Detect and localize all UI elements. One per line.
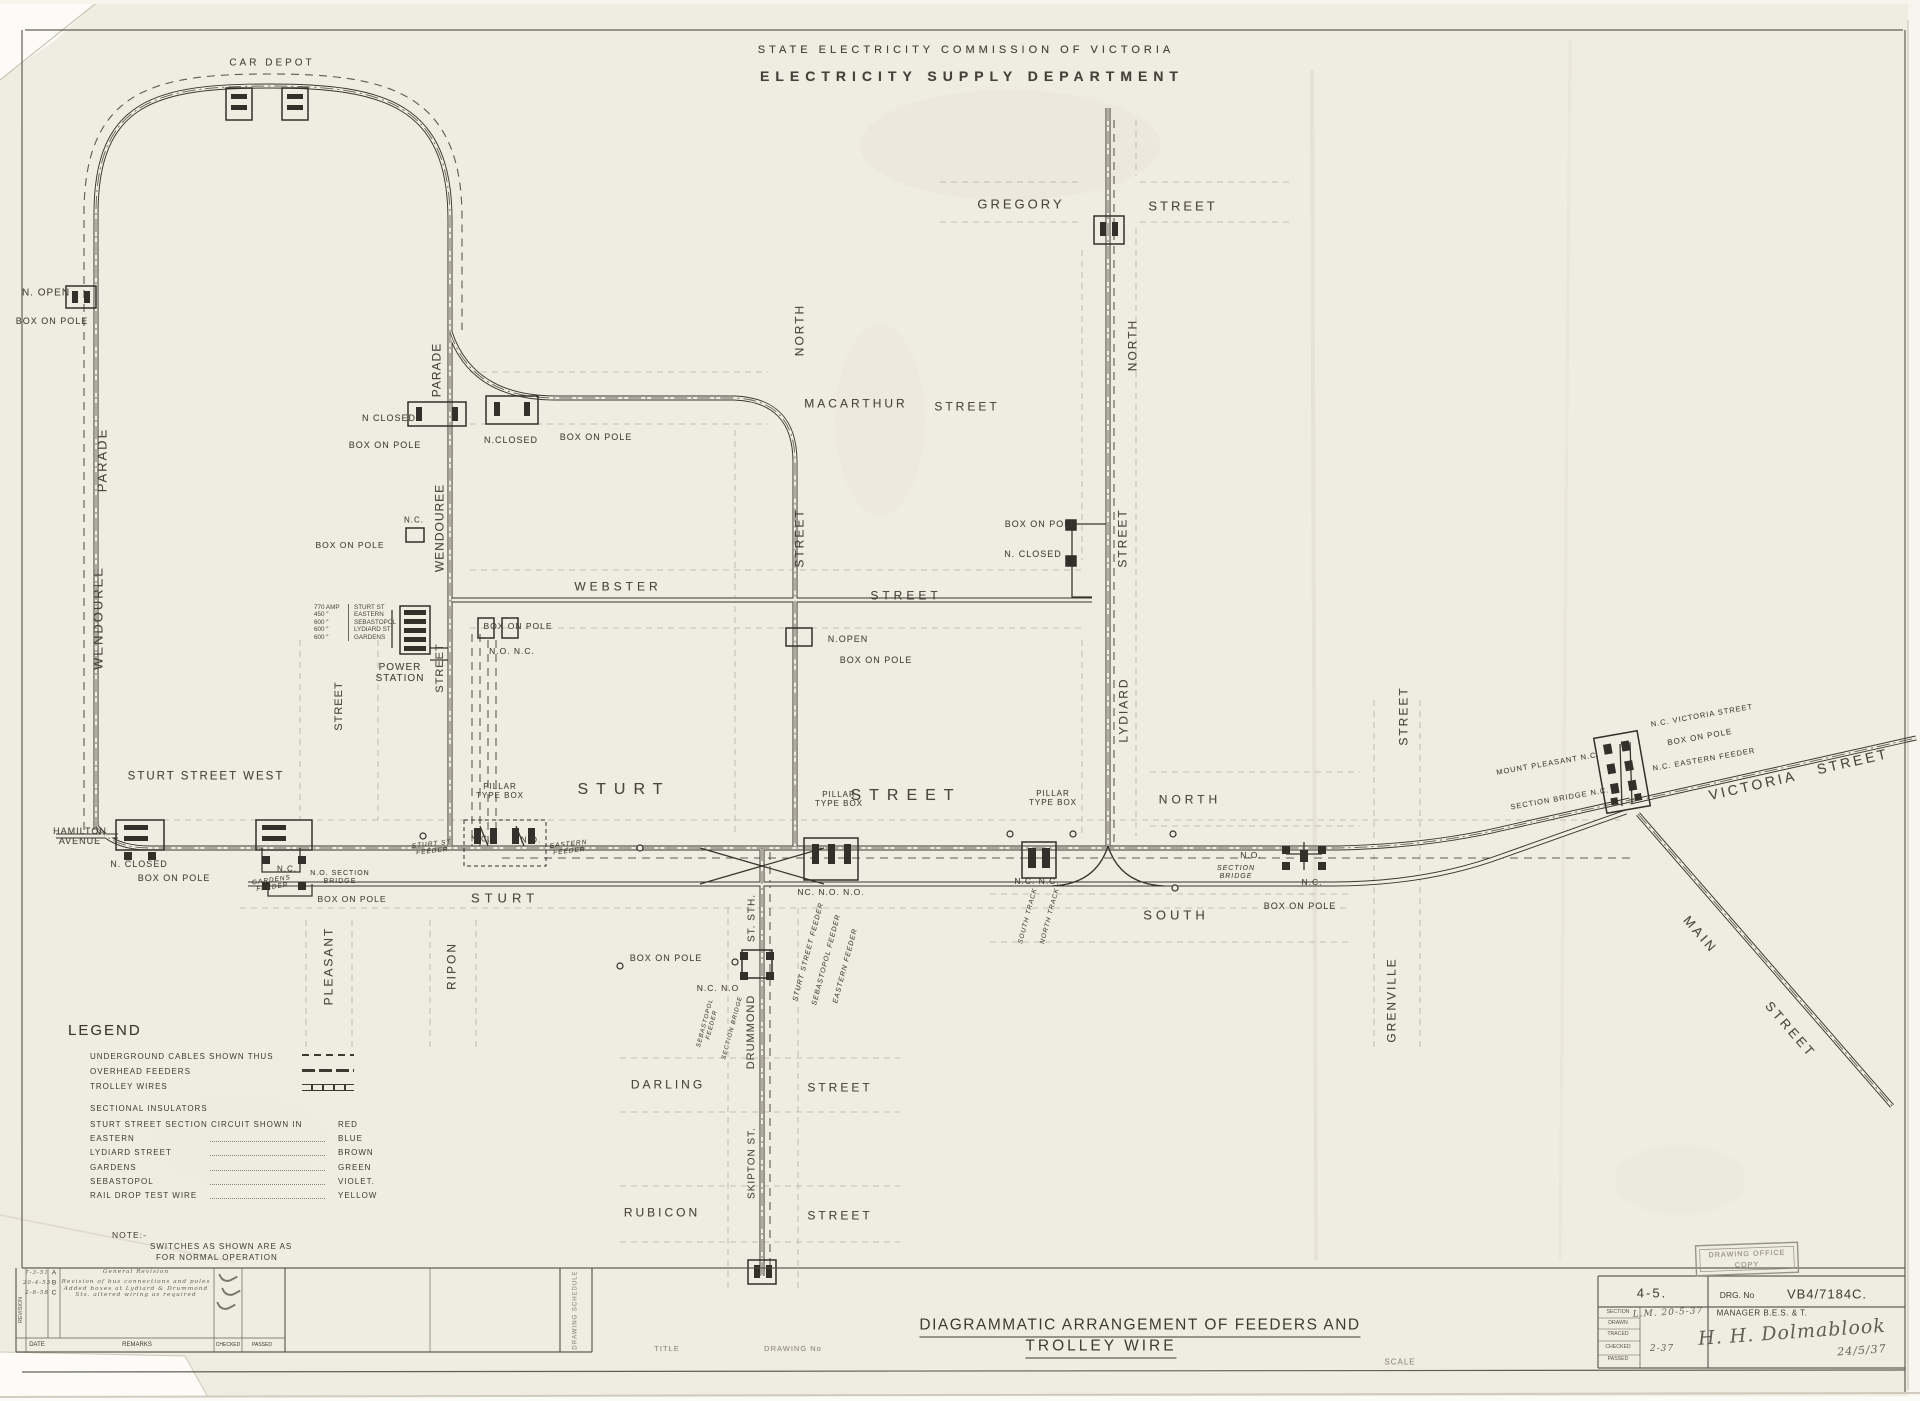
circuit-name: SEBASTOPOL <box>90 1177 154 1186</box>
sheet-title-line2: TROLLEY WIRE <box>1025 1338 1176 1359</box>
no-section-bridge: N.O. SECTION BRIDGE <box>310 870 369 886</box>
revision-date-header: DATE <box>29 1342 45 1348</box>
revision-remark: General Revision <box>61 1270 211 1276</box>
legend-circuit-row: EASTERNBLUE <box>90 1134 135 1143</box>
revision-date: 20-4-53 <box>23 1280 51 1286</box>
dotted-leader <box>210 1191 325 1199</box>
lydiard-label: LYDIARD <box>1117 677 1130 742</box>
feeder-name: GARDENS <box>348 634 385 641</box>
darling-street-label: STREET <box>807 1081 872 1094</box>
nc-sturt: N.C. <box>471 836 491 845</box>
circuit-name: LYDIARD STREET <box>90 1148 172 1157</box>
scale-label: SCALE <box>1384 1359 1415 1368</box>
feeder-name: LYDIARD ST <box>348 626 391 633</box>
legend-circuit-row: SEBASTOPOLVIOLET. <box>90 1177 154 1186</box>
darling-label: DARLING <box>631 1078 705 1091</box>
power-station-feeder-list: 770 AMPSTURT ST450 ″EASTERN600 ″SEBASTOP… <box>314 604 396 641</box>
feeder-row: 450 ″EASTERN <box>314 611 396 618</box>
street-west-label: STREET <box>333 681 345 730</box>
hamilton-avenue-label: HAMILTON AVENUE <box>53 826 107 846</box>
box-on-pole-lydiard: BOX ON POLE <box>1005 519 1078 529</box>
webster-street-label: STREET <box>870 589 941 602</box>
power-station-label: POWER STATION <box>376 662 425 684</box>
dotted-leader <box>210 1148 325 1156</box>
dash-line-swatch <box>302 1054 354 1056</box>
no-nc-ps: N.O. N.C. <box>489 647 535 657</box>
nc-wendouree: N.C. <box>404 517 424 526</box>
nc-nc-lydiard: N.C. N.C. <box>1014 877 1059 887</box>
box-on-pole-3: BOX ON POLE <box>315 541 384 551</box>
feeder-name: STURT ST <box>348 604 385 611</box>
legend-circuit-row: GARDENSGREEN <box>90 1163 137 1172</box>
revision-date: 2-8-58 <box>25 1290 49 1296</box>
feeder-amps: 600 ″ <box>314 634 348 641</box>
box-on-pole-gardens: BOX ON POLE <box>317 895 386 905</box>
commission-title: STATE ELECTRICITY COMMISSION OF VICTORIA <box>758 44 1175 56</box>
dotted-leader <box>210 1163 325 1171</box>
n-closed-hamilton: N. CLOSED <box>110 859 168 869</box>
box-on-pole-2: BOX ON POLE <box>560 432 633 442</box>
drawing-number: VB4/7184C. <box>1787 1287 1867 1302</box>
dotted-leader <box>210 1134 325 1142</box>
n-closed-lydiard: N. CLOSED <box>1004 549 1062 559</box>
section-bridge-e: SECTION BRIDGE <box>1217 865 1255 881</box>
legend-note-label: NOTE:- <box>112 1230 147 1240</box>
legend-note-line1: SWITCHES AS SHOWN ARE AS <box>150 1242 292 1251</box>
sheet-title-line1: DIAGRAMMATIC ARRANGEMENT OF FEEDERS AND <box>919 1317 1360 1338</box>
scanned-feeder-diagram: CAR DEPOTN. OPENBOX ON POLEPARADEWENDOUR… <box>0 0 1920 1401</box>
macarthur-street-label: STREET <box>934 400 999 413</box>
nc-no-drummond: N.C. N.O <box>697 984 739 994</box>
nc-gardens: N.C. <box>277 866 297 875</box>
gregory-street-label: STREET <box>1148 200 1217 215</box>
rubicon-street-label: STREET <box>807 1209 872 1222</box>
feeder-row: 600 ″GARDENS <box>314 634 396 641</box>
legend-line-row: UNDERGROUND CABLES SHOWN THUS <box>90 1052 274 1061</box>
title-block-row-section: SECTION <box>1606 1309 1629 1315</box>
revision-remarks-header: REMARKS <box>122 1342 152 1348</box>
pillar-type-box-e: PILLAR TYPE BOX <box>1029 790 1077 808</box>
revision-remark: Added boxes at Lydiard & Drummond Sts. a… <box>61 1287 211 1299</box>
rubicon-label: RUBICON <box>624 1206 700 1219</box>
title-block-row-passed: PASSED <box>1608 1356 1629 1362</box>
revision-passed-header: PASSED <box>252 1342 272 1348</box>
legend-heading: LEGEND <box>68 1022 142 1039</box>
trolley-line-swatch <box>302 1084 354 1091</box>
circuit-name: GARDENS <box>90 1163 137 1172</box>
drawing-schedule-label: DRAWING SCHEDULE <box>573 1270 580 1349</box>
drawing-number-label: DRG. No <box>1720 1290 1754 1300</box>
revision-date: 7-3-51 <box>25 1270 49 1276</box>
box-on-pole-drummond-s: BOX ON POLE <box>630 953 703 963</box>
north-drummond-label: NORTH <box>793 304 806 356</box>
feeder-row: 770 AMPSTURT ST <box>314 604 396 611</box>
circuit-name: RAIL DROP TEST WIRE <box>90 1191 197 1200</box>
legend-line-row: OVERHEAD FEEDERS <box>90 1067 191 1076</box>
sturt-west-label: STURT <box>471 892 539 907</box>
title-block-row-checked: CHECKED <box>1605 1344 1630 1350</box>
legend-circuit-row: RAIL DROP TEST WIREYELLOW <box>90 1191 197 1200</box>
nc-no-no-label: NC. N.O. N.O. <box>797 888 864 898</box>
webster-label: WEBSTER <box>574 580 661 593</box>
box-on-pole-nw: BOX ON POLE <box>16 316 89 326</box>
skipton-label: SKIPTON ST. <box>746 1127 757 1199</box>
legend-note-line2: FOR NORMAL OPERATION <box>156 1253 278 1262</box>
legend-line-label: OVERHEAD FEEDERS <box>90 1067 191 1076</box>
revision-vertical-label: REVISION <box>18 1297 24 1323</box>
legend-line-row: TROLLEY WIRES <box>90 1082 168 1091</box>
circuit-color: BLUE <box>338 1134 363 1143</box>
feeder-amps: 770 AMP <box>314 604 348 611</box>
n-closed-loop: N CLOSED <box>362 413 416 423</box>
sturt-main-label: STURT <box>577 781 670 799</box>
south-street-label: SOUTH <box>1143 909 1209 924</box>
sturt-street-west-label: STURT STREET WEST <box>128 771 285 784</box>
feeder-row: 600 ″SEBASTOPOL <box>314 619 396 626</box>
gregory-label: GREGORY <box>977 198 1064 213</box>
street-grenville-label: STREET <box>1397 686 1410 745</box>
manager-label: MANAGER B.E.S. & T. <box>1717 1309 1808 1318</box>
nc-bridge-e: N.C. <box>1302 878 1323 888</box>
wendouree-east-label: WENDOUREE <box>433 484 446 572</box>
n-open-drummond: N.OPEN <box>828 634 869 644</box>
feeder-name: EASTERN <box>348 611 384 618</box>
n-closed-2: N.CLOSED <box>484 435 538 445</box>
office-stamp-line2: COPY <box>1735 1261 1760 1270</box>
street-main-label: STREET <box>850 787 961 805</box>
wendouree-west-label: WENDOUREE <box>92 566 107 670</box>
no-sturt: N.O. <box>521 837 541 846</box>
cell-drawing-no-label: DRAWING No <box>764 1345 822 1353</box>
parade-east-label: PARADE <box>430 343 443 397</box>
box-on-pole-loop: BOX ON POLE <box>349 440 422 450</box>
circuit-color: BROWN <box>338 1148 374 1157</box>
north-sturt-label: NORTH <box>1159 793 1221 806</box>
feeder-amps: 600 ″ <box>314 626 348 633</box>
car-depot-label: CAR DEPOT <box>229 57 314 68</box>
grenville-label: GRENVILLE <box>1385 957 1398 1042</box>
feeder-amps: 450 ″ <box>314 611 348 618</box>
legend-line-label: TROLLEY WIRES <box>90 1082 168 1091</box>
revision-remark: Revision of bus connections and poles <box>61 1280 211 1286</box>
revision-rev: A <box>52 1270 56 1277</box>
feeder-row: 600 ″LYDIARD ST <box>314 626 396 633</box>
box-on-pole-hamilton: BOX ON POLE <box>138 873 211 883</box>
street-drummond-n-label: STREET <box>793 508 806 567</box>
no-bridge-e: N.O. <box>1240 851 1261 861</box>
drummond-s-label: DRUMMOND <box>745 995 757 1070</box>
circuit-name: STURT STREET SECTION CIRCUIT SHOWN IN <box>90 1120 302 1129</box>
n-open-label: N. OPEN <box>22 287 70 298</box>
checked-entry: 2-37 <box>1650 1344 1674 1354</box>
north-lydiard-label: NORTH <box>1126 319 1139 371</box>
box-on-pole-ps: BOX ON POLE <box>483 622 552 632</box>
revision-rev: B <box>52 1280 56 1287</box>
legend-circuit-row: STURT STREET SECTION CIRCUIT SHOWN INRED <box>90 1120 302 1129</box>
department-title: ELECTRICITY SUPPLY DEPARTMENT <box>760 68 1184 84</box>
feeder-amps: 600 ″ <box>314 619 348 626</box>
legend-line-label: UNDERGROUND CABLES SHOWN THUS <box>90 1052 274 1061</box>
legend-insulators-heading: SECTIONAL INSULATORS <box>90 1104 208 1113</box>
pillar-type-box-w: PILLAR TYPE BOX <box>476 783 524 801</box>
title-block-row-drawn: DRAWN <box>1608 1320 1627 1326</box>
circuit-name: EASTERN <box>90 1134 135 1143</box>
pleasant-label: PLEASANT <box>322 927 335 1006</box>
street-lydiard-label: STREET <box>1116 508 1129 567</box>
sheet-number: 4-5. <box>1637 1286 1667 1301</box>
dotted-leader <box>210 1177 325 1185</box>
st-sth-label: ST. STH. <box>746 894 757 942</box>
box-on-pole-drummond: BOX ON POLE <box>840 655 913 665</box>
macarthur-label: MACARTHUR <box>804 397 907 410</box>
circuit-color: RED <box>338 1120 358 1129</box>
revision-rev: C <box>52 1290 57 1297</box>
revision-checked-header: CHECKED <box>216 1342 240 1348</box>
legend: LEGEND UNDERGROUND CABLES SHOWN THUSOVER… <box>60 1022 390 1282</box>
circuit-color: VIOLET. <box>338 1177 375 1186</box>
box-on-pole-e: BOX ON POLE <box>1264 901 1337 911</box>
street-ps-label: STREET <box>434 643 446 692</box>
cell-title-label: TITLE <box>654 1345 679 1353</box>
circuit-color: GREEN <box>338 1163 371 1172</box>
legend-circuit-row: LYDIARD STREETBROWN <box>90 1148 172 1157</box>
parade-west-label: PARADE <box>96 428 111 493</box>
circuit-color: YELLOW <box>338 1191 377 1200</box>
feeder-line-swatch <box>302 1069 354 1072</box>
ripon-label: RIPON <box>445 942 458 990</box>
feeder-name: SEBASTOPOL <box>348 619 396 626</box>
title-block-row-traced: TRACED <box>1607 1331 1628 1337</box>
